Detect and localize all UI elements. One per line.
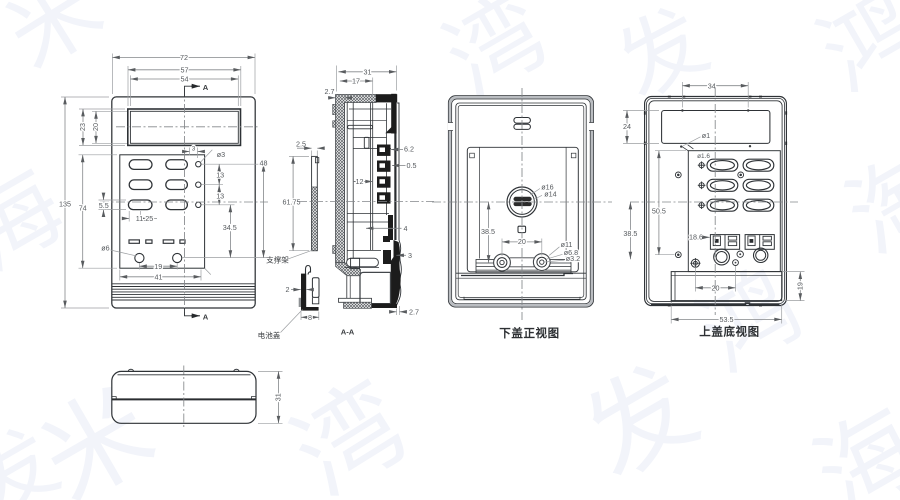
svg-text:2.7: 2.7 (325, 87, 335, 96)
svg-text:61.75: 61.75 (283, 198, 301, 207)
svg-text:ø1: ø1 (702, 131, 710, 140)
svg-text:17: 17 (352, 77, 360, 86)
svg-text:23: 23 (78, 123, 87, 131)
svg-text:ø3: ø3 (217, 150, 225, 159)
svg-text:13: 13 (216, 171, 224, 180)
svg-text:72: 72 (180, 53, 188, 62)
svg-text:A: A (203, 312, 209, 321)
svg-text:20: 20 (91, 123, 100, 131)
svg-text:38.5: 38.5 (623, 229, 637, 238)
svg-text:ø3.2: ø3.2 (566, 254, 580, 263)
svg-text:上盖底视图: 上盖底视图 (699, 325, 760, 339)
svg-text:38.5: 38.5 (481, 227, 495, 236)
svg-text:电池盖: 电池盖 (258, 330, 281, 340)
svg-text:6.2: 6.2 (404, 145, 414, 154)
svg-text:20: 20 (518, 237, 526, 246)
svg-text:31: 31 (364, 67, 372, 76)
svg-text:53.5: 53.5 (720, 315, 734, 324)
svg-text:31: 31 (274, 393, 283, 401)
svg-text:18.6: 18.6 (689, 233, 703, 242)
svg-text:5.5: 5.5 (99, 201, 109, 210)
svg-text:48: 48 (260, 159, 268, 168)
svg-text:0.5: 0.5 (407, 161, 417, 170)
svg-text:19: 19 (154, 262, 162, 271)
svg-text:34.5: 34.5 (223, 223, 237, 232)
svg-text:3: 3 (192, 145, 196, 152)
svg-text:34: 34 (708, 81, 716, 90)
svg-text:ø14: ø14 (544, 189, 556, 198)
svg-text:19: 19 (796, 282, 805, 290)
svg-text:支撑架: 支撑架 (266, 255, 289, 265)
svg-text:ø1.6: ø1.6 (697, 153, 710, 160)
svg-text:2: 2 (286, 285, 290, 294)
svg-text:8: 8 (308, 313, 312, 322)
svg-text:2.7: 2.7 (409, 307, 419, 316)
svg-text:13: 13 (216, 192, 224, 201)
svg-text:A-A: A-A (341, 328, 355, 337)
svg-text:135: 135 (59, 200, 71, 209)
svg-text:11.25: 11.25 (136, 214, 153, 223)
svg-text:2.5: 2.5 (296, 140, 306, 149)
svg-text:54: 54 (181, 75, 189, 84)
svg-text:41: 41 (155, 272, 163, 281)
svg-text:4: 4 (404, 224, 408, 233)
svg-text:A: A (203, 83, 209, 92)
svg-text:24: 24 (623, 122, 631, 131)
svg-text:下盖正视图: 下盖正视图 (499, 326, 560, 340)
svg-text:3: 3 (408, 251, 412, 260)
svg-text:ø6: ø6 (101, 244, 109, 253)
svg-text:57: 57 (181, 65, 189, 74)
svg-text:74: 74 (79, 204, 87, 213)
svg-text:50.5: 50.5 (652, 207, 666, 216)
svg-text:12: 12 (356, 177, 364, 186)
